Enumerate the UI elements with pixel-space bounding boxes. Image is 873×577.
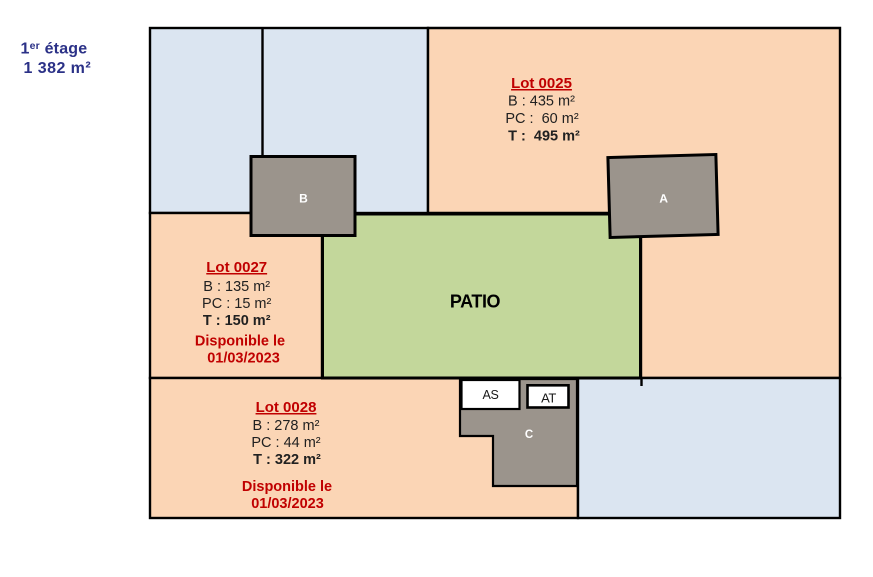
svg-text:1 382 m²: 1 382 m² <box>24 60 92 77</box>
svg-text:B : 435 m²: B : 435 m² <box>508 94 575 110</box>
svg-text:Lot 0025: Lot 0025 <box>511 75 572 92</box>
svg-text:PATIO: PATIO <box>450 292 501 312</box>
svg-text:AS: AS <box>482 388 498 402</box>
svg-text:1er étage: 1er étage <box>21 40 88 58</box>
svg-text:Lot 0027: Lot 0027 <box>206 259 267 276</box>
svg-text:01/03/2023: 01/03/2023 <box>251 496 324 512</box>
svg-text:T : 495 m²: T : 495 m² <box>508 129 580 145</box>
svg-text:B : 278 m²: B : 278 m² <box>253 418 320 434</box>
svg-text:Disponible le: Disponible le <box>195 334 285 350</box>
svg-text:T : 150 m²: T : 150 m² <box>203 313 271 329</box>
svg-text:T : 322 m²: T : 322 m² <box>253 452 321 468</box>
svg-text:PC : 15 m²: PC : 15 m² <box>202 296 271 312</box>
svg-text:Disponible le: Disponible le <box>242 479 332 495</box>
svg-text:AT: AT <box>541 390 556 405</box>
svg-text:PC : 44 m²: PC : 44 m² <box>251 435 320 451</box>
svg-text:01/03/2023: 01/03/2023 <box>207 351 280 367</box>
svg-text:PC : 60 m²: PC : 60 m² <box>505 111 578 127</box>
svg-text:C: C <box>525 429 533 441</box>
svg-text:B: B <box>299 191 308 205</box>
svg-text:B : 135 m²: B : 135 m² <box>203 279 270 295</box>
svg-text:Lot 0028: Lot 0028 <box>256 399 317 416</box>
svg-text:A: A <box>659 191 668 205</box>
